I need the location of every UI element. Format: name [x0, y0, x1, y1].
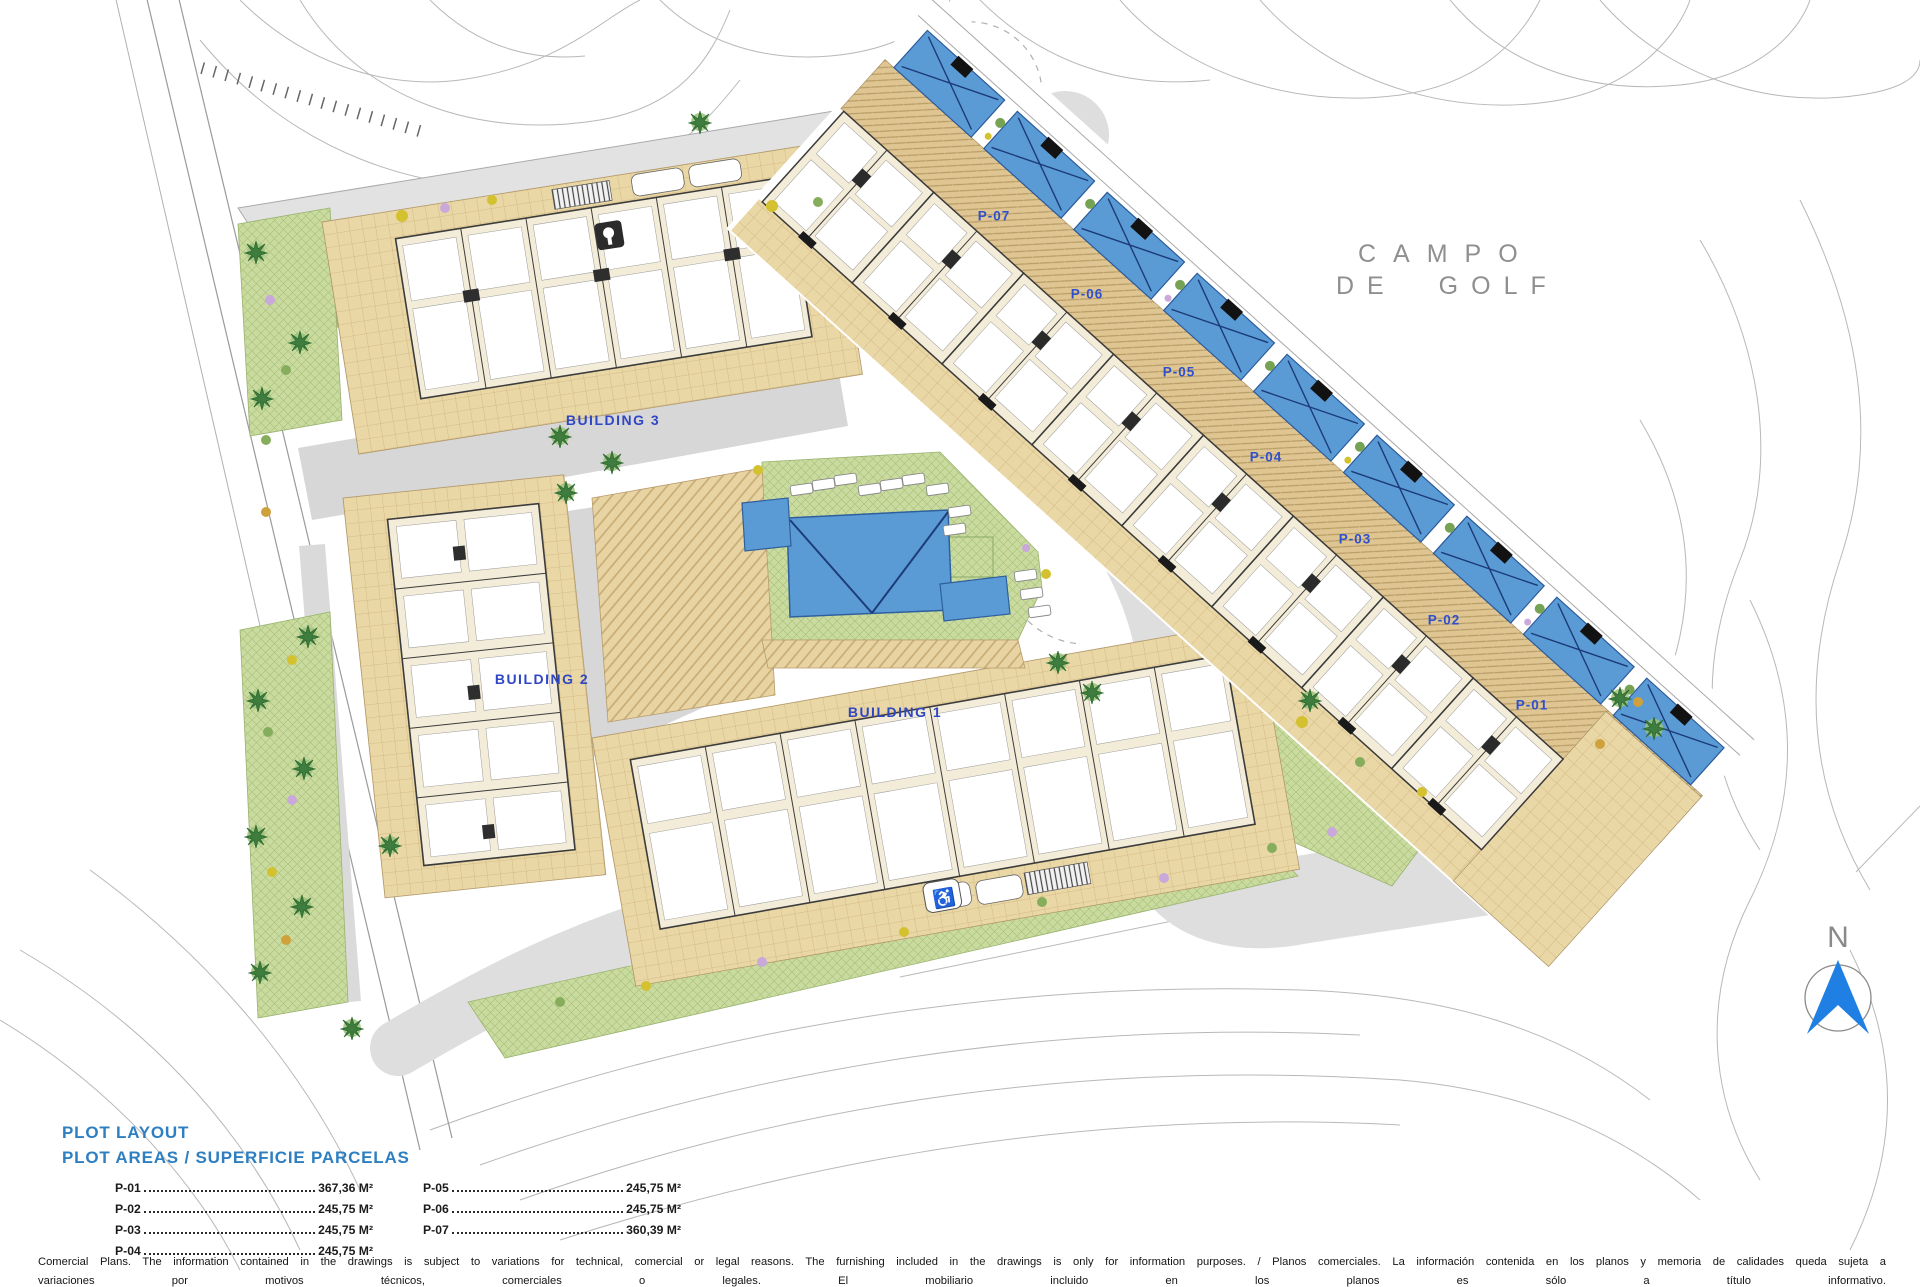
- plot-areas-list: P-01367,36 M² P-02245,75 M² P-03245,75 M…: [115, 1174, 681, 1258]
- plot-area-row: P-03245,75 M²: [115, 1216, 373, 1237]
- plot-area-value: 245,75 M²: [318, 1223, 373, 1237]
- dotted-leader: [452, 1211, 623, 1213]
- plot-label-p07: P-07: [978, 209, 1011, 224]
- entrance-gate-icon: [594, 220, 625, 251]
- building-2-label: BUILDING 2: [495, 671, 589, 687]
- plot-id: P-01: [115, 1181, 141, 1195]
- north-arrow-icon: [1805, 960, 1871, 1034]
- kids-pool: [742, 498, 791, 551]
- plot-areas-column-2: P-05245,75 M² P-06245,75 M² P-07360,39 M…: [423, 1174, 681, 1258]
- site-plan-page: ♿: [0, 0, 1920, 1280]
- plot-label-p04: P-04: [1250, 450, 1283, 465]
- golf-course-label: CAMPO DE GOLF: [1358, 240, 1559, 301]
- dotted-leader: [144, 1211, 315, 1213]
- legend-subtitle: PLOT AREAS / SUPERFICIE PARCELAS: [62, 1145, 410, 1170]
- disclaimer-line-1: Comercial Plans. The information contain…: [38, 1256, 1886, 1268]
- plot-area-value: 245,75 M²: [318, 1202, 373, 1216]
- dotted-leader: [452, 1190, 623, 1192]
- plot-area-value: 360,39 M²: [626, 1223, 681, 1237]
- plot-area-row: P-02245,75 M²: [115, 1195, 373, 1216]
- disclaimer-line-2: variaciones por motivos técnicos, comerc…: [38, 1275, 1886, 1287]
- plot-label-p03: P-03: [1339, 532, 1372, 547]
- plot-id: P-02: [115, 1202, 141, 1216]
- plot-area-row: P-05245,75 M²: [423, 1174, 681, 1195]
- plot-area-value: 367,36 M²: [318, 1181, 373, 1195]
- spa-pool: [940, 576, 1010, 621]
- plot-id: P-06: [423, 1202, 449, 1216]
- main-pool: [787, 510, 952, 617]
- dotted-leader: [144, 1190, 315, 1192]
- legend: PLOT LAYOUT PLOT AREAS / SUPERFICIE PARC…: [62, 1120, 410, 1170]
- plot-id: P-03: [115, 1223, 141, 1237]
- site-plan-drawing: ♿: [0, 0, 1920, 1280]
- dotted-leader: [144, 1253, 315, 1255]
- svg-text:♿: ♿: [931, 886, 957, 911]
- plot-id: P-05: [423, 1181, 449, 1195]
- plot-label-p05: P-05: [1163, 365, 1196, 380]
- north-label: N: [1827, 921, 1849, 955]
- accessible-parking-icon: ♿: [922, 878, 963, 914]
- plot-label-p01: P-01: [1516, 698, 1549, 713]
- building-3-label: BUILDING 3: [566, 412, 660, 428]
- plot-area-row: P-07360,39 M²: [423, 1216, 681, 1237]
- dotted-leader: [144, 1232, 315, 1234]
- plot-area-row: P-01367,36 M²: [115, 1174, 373, 1195]
- golf-course-line2: DE GOLF: [1336, 272, 1559, 301]
- plot-label-p02: P-02: [1428, 613, 1461, 628]
- dotted-leader: [452, 1232, 623, 1234]
- golf-course-line1: CAMPO: [1358, 240, 1559, 269]
- plot-areas-column-1: P-01367,36 M² P-02245,75 M² P-03245,75 M…: [115, 1174, 373, 1258]
- plot-id: P-07: [423, 1223, 449, 1237]
- plot-area-value: 245,75 M²: [626, 1181, 681, 1195]
- building-1-label: BUILDING 1: [848, 704, 942, 720]
- plot-area-value: 245,75 M²: [626, 1202, 681, 1216]
- plot-label-p06: P-06: [1071, 287, 1104, 302]
- plot-area-row: P-04245,75 M²: [115, 1237, 373, 1258]
- plot-area-row: P-06245,75 M²: [423, 1195, 681, 1216]
- legend-title: PLOT LAYOUT: [62, 1120, 410, 1145]
